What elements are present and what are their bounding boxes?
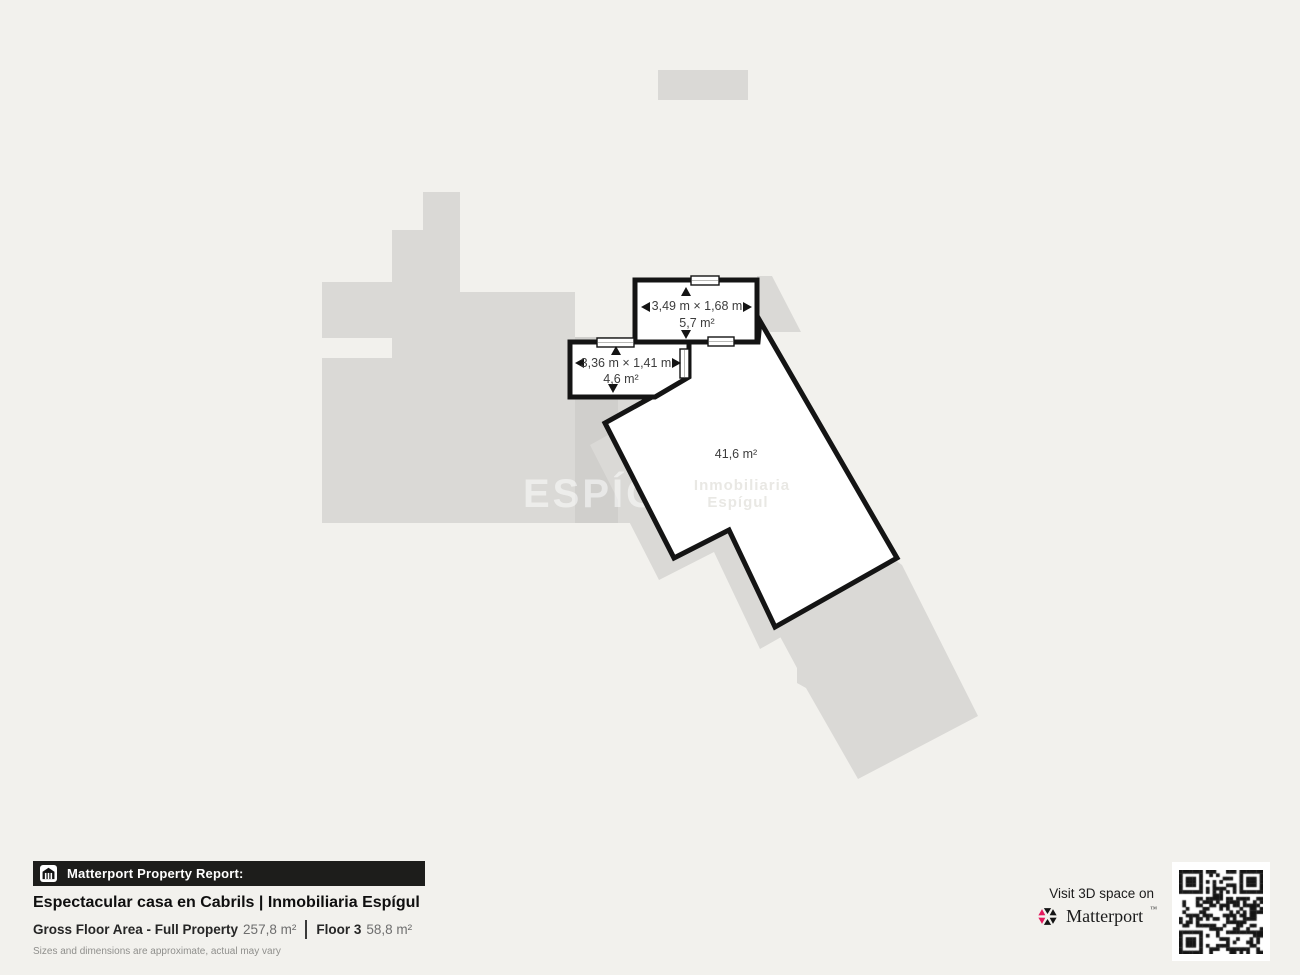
floorplan: ESPÍGUL ® [0, 0, 1300, 975]
room-b-dimensions-label: 3,36 m × 1,41 m [581, 356, 672, 370]
gross-floor-area-label: Gross Floor Area - Full Property [33, 922, 238, 937]
matterport-house-icon [40, 865, 57, 882]
room-a-area-label: 5,7 m² [679, 316, 714, 330]
metrics-divider [305, 920, 307, 939]
property-title: Espectacular casa en Cabrils | Inmobilia… [33, 894, 420, 912]
property-report-page: ESPÍGUL ® [0, 0, 1300, 975]
floor-area-metrics: Gross Floor Area - Full Property 257,8 m… [33, 920, 412, 939]
qr-code [1179, 870, 1263, 954]
qr-code-card [1172, 862, 1270, 961]
floor-area-value: 58,8 m² [366, 922, 412, 937]
underlay-balcony [658, 70, 748, 100]
trademark-mark: ™ [1150, 905, 1157, 913]
faint-watermark-line1: Inmobiliaria [694, 477, 790, 494]
window-room-b-right [680, 349, 689, 378]
window-room-a-top [691, 276, 719, 285]
window-room-b-top [597, 338, 634, 347]
disclaimer-text: Sizes and dimensions are approximate, ac… [33, 946, 281, 957]
matterport-wordmark: Matterport [1066, 905, 1143, 927]
room-b-area-label: 4,6 m² [603, 372, 638, 386]
visit-3d-space-label: Visit 3D space on [1049, 886, 1154, 901]
matterport-brand-row: Matterport™ [1036, 905, 1157, 928]
room-main-area-label: 41,6 m² [715, 447, 757, 461]
gross-floor-area-value: 257,8 m² [243, 922, 296, 937]
matterport-logo-icon [1036, 905, 1059, 928]
report-bar-label: Matterport Property Report: [67, 866, 244, 881]
room-a-dimensions-label: 3,49 m × 1,68 m [652, 299, 743, 313]
report-header-bar: Matterport Property Report: [33, 861, 425, 886]
window-room-a-bottom [708, 337, 734, 346]
faint-watermark-line2: Espígul [707, 494, 768, 511]
floor-label: Floor 3 [316, 922, 361, 937]
